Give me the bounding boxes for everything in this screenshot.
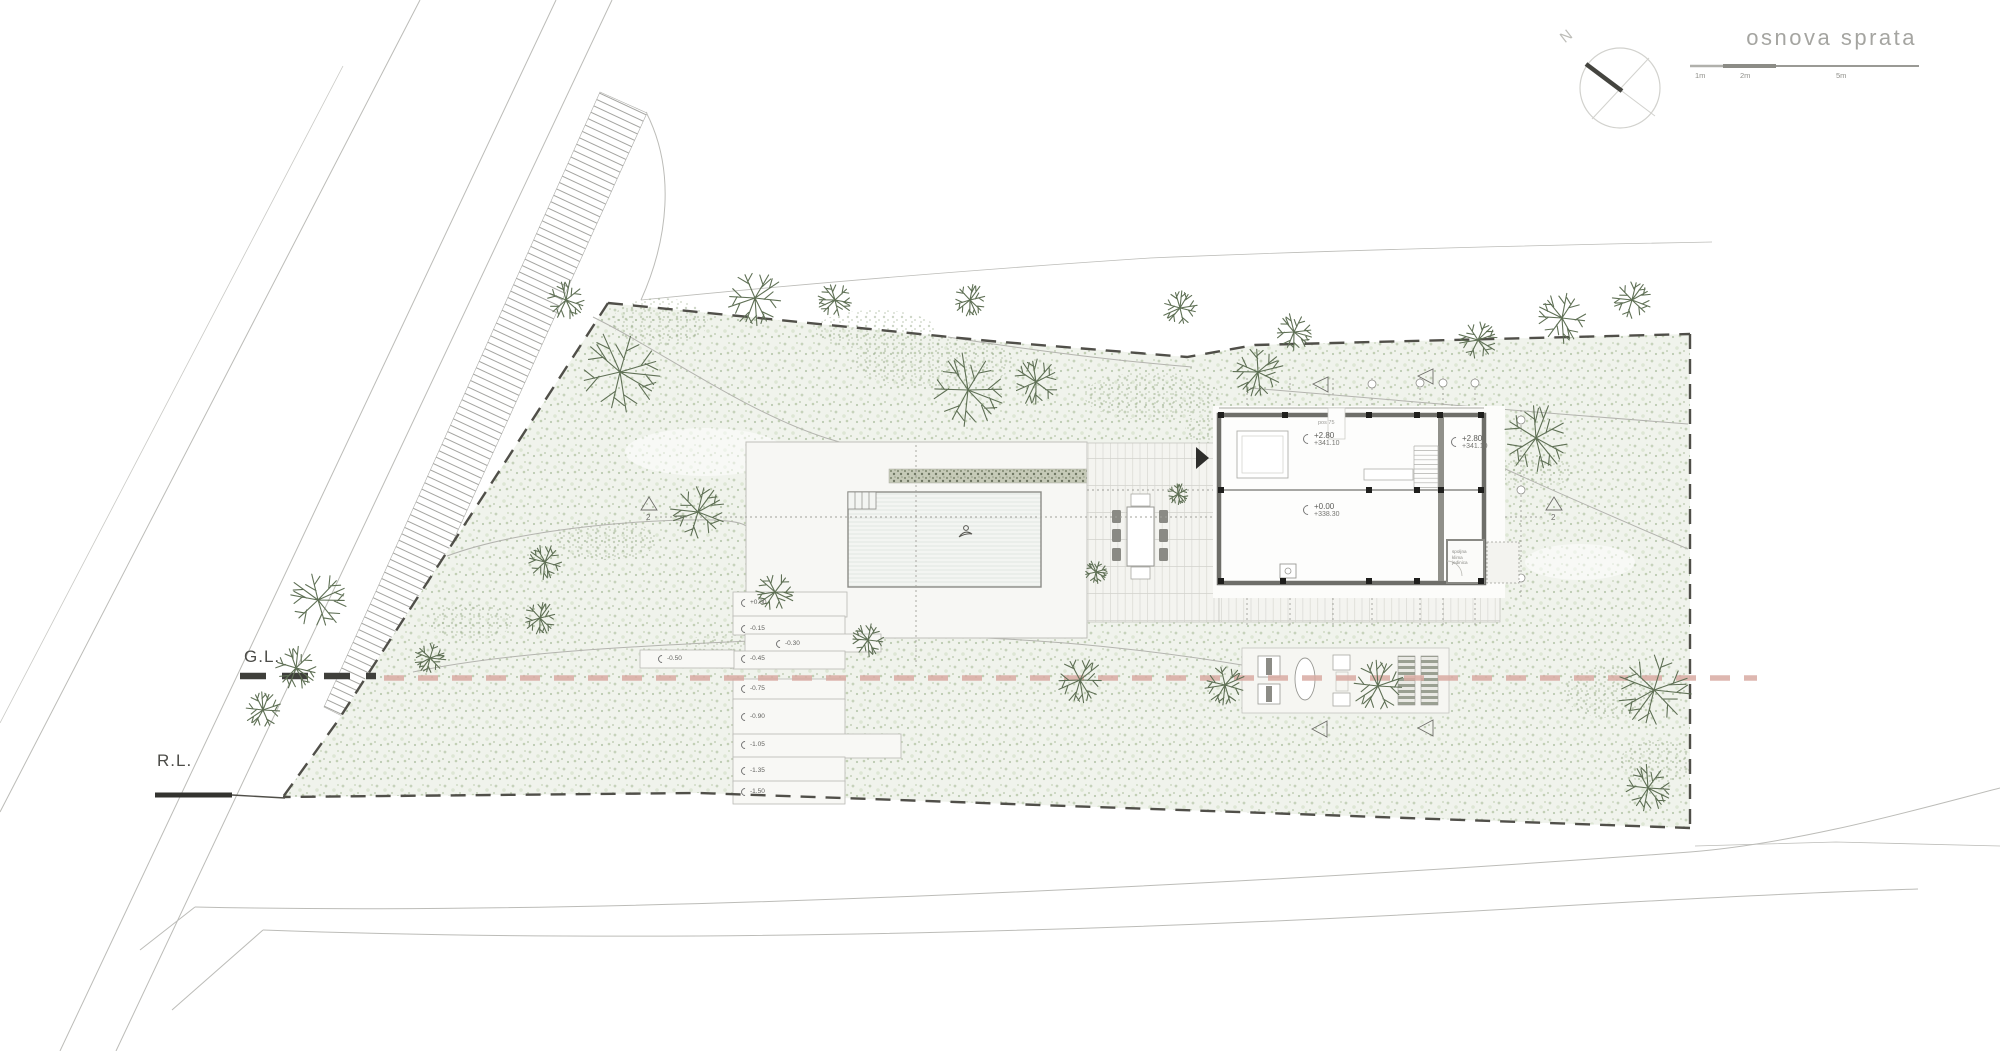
step-level-0: +0.00	[741, 599, 766, 607]
scale-tick-1m: 1m	[1695, 71, 1705, 80]
interior-wall	[1438, 417, 1444, 581]
step-level-6: -0.90	[741, 713, 765, 721]
step-level-1: -0.15	[741, 625, 765, 633]
ground-line-label: G.L.	[244, 647, 280, 667]
ground-room-level: +0.00+338.30	[1303, 503, 1340, 519]
level-glyph-icon	[774, 638, 785, 649]
step-level-5: -0.75	[741, 685, 765, 693]
section-number-right: 2	[1551, 513, 1555, 522]
tree-icon	[1608, 275, 1658, 325]
level-glyph-icon	[656, 653, 667, 664]
level-glyph-icon	[739, 711, 750, 722]
step-level-3: -0.45	[741, 655, 765, 663]
level-glyph-icon	[739, 623, 750, 634]
road-line-label: R.L.	[157, 751, 192, 771]
furniture-bed	[1237, 431, 1288, 478]
level-glyph-icon	[739, 653, 750, 664]
outdoor-platform	[1487, 542, 1519, 583]
fixture	[1280, 564, 1296, 578]
gravel-strip	[889, 469, 1090, 483]
step-level-9: -1.50	[741, 788, 765, 796]
level-glyph-icon	[1449, 435, 1463, 449]
scale-tick-2m: 2m	[1740, 71, 1750, 80]
ac-room-label: spoljna klima jedinica	[1452, 549, 1468, 566]
step-level-4: -0.50	[658, 655, 682, 663]
swimming-pool	[848, 492, 1041, 587]
level-glyph-icon	[739, 683, 750, 694]
step-level-2: -0.30	[776, 640, 800, 648]
dining-table	[1127, 507, 1154, 566]
furniture-cabinet	[1364, 469, 1413, 480]
level-glyph-icon	[739, 739, 750, 750]
section-number-left: 2	[646, 513, 650, 522]
site-plan-drawing	[0, 0, 2000, 1051]
tree-icon	[1164, 291, 1197, 323]
tree-icon	[949, 280, 992, 322]
level-glyph-icon	[1301, 503, 1315, 517]
step-level-7: -1.05	[741, 741, 765, 749]
upper-room-level: +2.80+341.10	[1303, 432, 1340, 448]
compass	[1580, 48, 1660, 128]
pos-note: pos 75	[1318, 420, 1335, 426]
level-glyph-icon	[739, 765, 750, 776]
level-glyph-icon	[739, 597, 750, 608]
north-needle	[1586, 64, 1622, 91]
drawing-title: osnova sprata	[1746, 25, 1917, 51]
level-glyph-icon	[1301, 432, 1315, 446]
tree-icon	[282, 562, 357, 637]
site-plan-canvas: osnova sprata N 1m 2m 5m G.L. R.L. 2 2 +…	[0, 0, 2000, 1051]
scale-tick-5m: 5m	[1836, 71, 1846, 80]
step-level-8: -1.35	[741, 767, 765, 775]
level-glyph-icon	[739, 786, 750, 797]
side-room-level: +2.80+341.10	[1451, 435, 1488, 451]
